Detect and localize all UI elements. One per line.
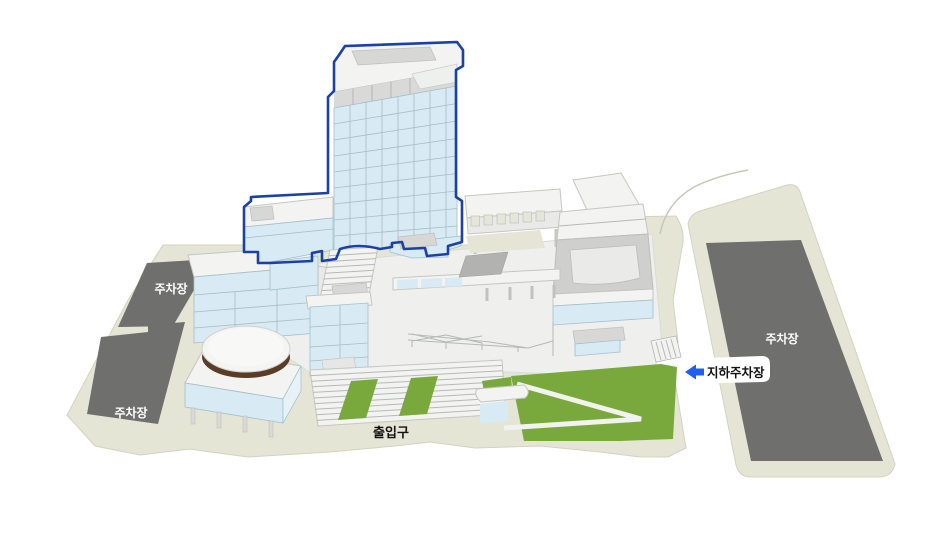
- parking-label-left-top: 주차장: [154, 281, 187, 296]
- entrance-label: 출입구: [373, 425, 409, 440]
- pillar: [191, 408, 195, 424]
- lower-pavilion: [306, 283, 372, 376]
- window-square: [536, 211, 545, 221]
- campus-map-illustration: 주차장 주차장 주차장 출입구 지하주차장: [0, 0, 950, 550]
- plaza-slab: [459, 252, 508, 277]
- hatched-ramp: [651, 336, 681, 362]
- window-square: [484, 215, 493, 225]
- parking-label-right: 주차장: [765, 331, 798, 346]
- window-square: [497, 214, 506, 224]
- parking-label-left-bottom: 주차장: [114, 405, 147, 420]
- site-map: 주차장 주차장 주차장 출입구 지하주차장: [0, 0, 950, 550]
- window-square: [523, 212, 532, 222]
- window-square: [510, 213, 519, 223]
- pillar: [217, 412, 221, 428]
- pillar: [269, 421, 273, 437]
- pond: [480, 401, 508, 424]
- dome-roof: [202, 326, 290, 378]
- underground-parking-label: 지하주차장: [707, 365, 765, 380]
- window-square: [471, 216, 480, 226]
- pillar: [243, 416, 247, 432]
